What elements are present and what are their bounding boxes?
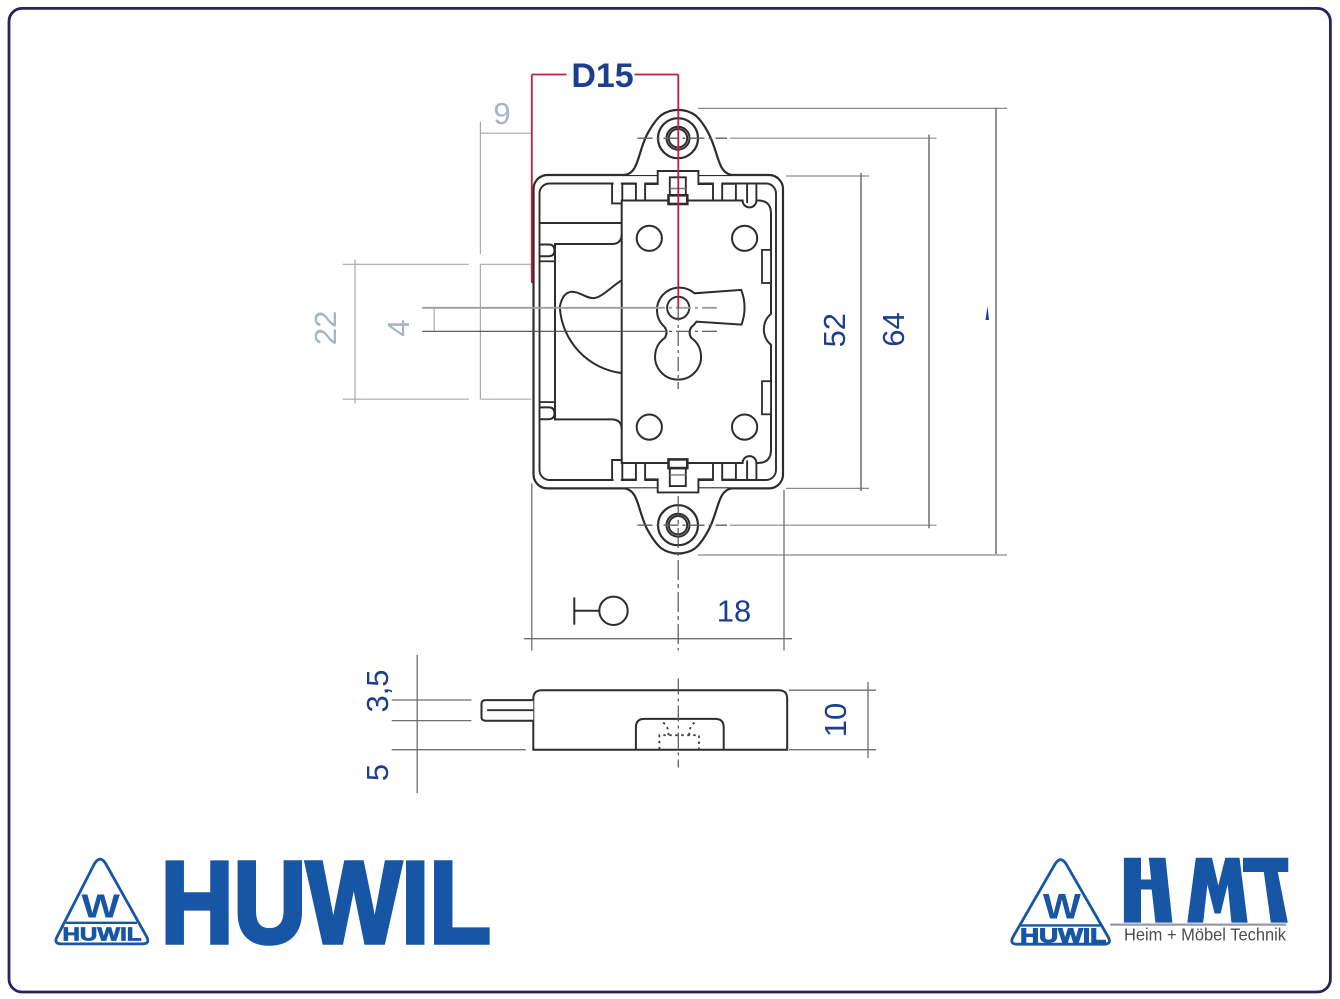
svg-text:52: 52	[817, 313, 852, 347]
svg-text:4: 4	[381, 319, 416, 336]
svg-text:Heim + Möbel Technik: Heim + Möbel Technik	[1124, 925, 1286, 945]
svg-text:64: 64	[876, 312, 911, 346]
svg-text:W: W	[81, 888, 120, 925]
svg-text:HUWIL: HUWIL	[1020, 925, 1106, 947]
svg-text:22: 22	[308, 311, 343, 345]
svg-text:3,5: 3,5	[360, 669, 395, 712]
svg-text:D15: D15	[571, 57, 633, 95]
svg-text:18: 18	[717, 594, 751, 629]
svg-text:W: W	[1043, 888, 1081, 927]
svg-text:HUWIL: HUWIL	[63, 923, 142, 944]
svg-text:10: 10	[818, 703, 853, 737]
svg-text:9: 9	[493, 96, 510, 131]
svg-text:HUWIL: HUWIL	[161, 838, 491, 968]
svg-text:5: 5	[360, 764, 395, 781]
